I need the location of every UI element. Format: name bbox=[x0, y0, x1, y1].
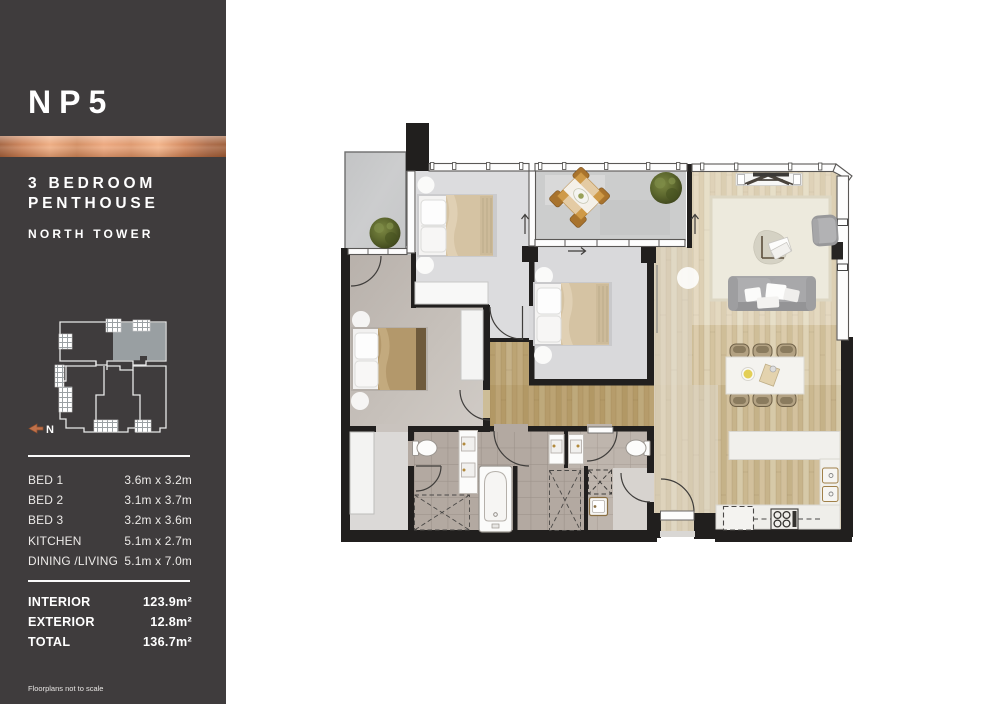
svg-text:N: N bbox=[46, 424, 54, 436]
